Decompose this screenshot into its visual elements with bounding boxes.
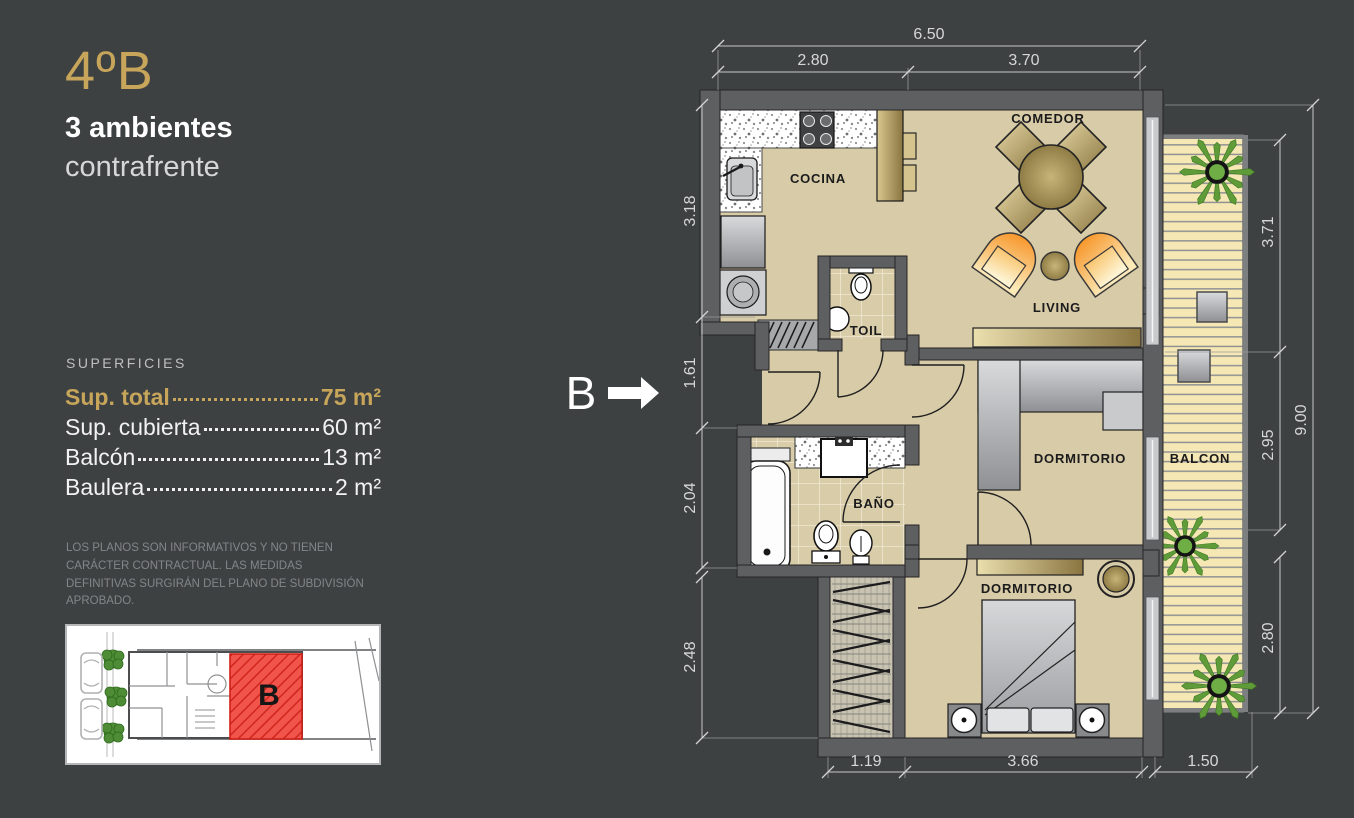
- label-dormitorio2: DORMITORIO: [981, 581, 1073, 596]
- legal-disclaimer: LOS PLANOS SON INFORMATIVOS Y NO TIENEN …: [66, 540, 368, 611]
- sofa: [973, 328, 1141, 347]
- area-row-balcon: Balcón 13 m²: [65, 444, 381, 474]
- label-toil: TOIL: [850, 323, 883, 338]
- areas-table: Sup. total 75 m² Sup. cubierta 60 m² Bal…: [65, 384, 381, 504]
- dim-left-3: 2.04: [682, 482, 699, 513]
- area-label: Sup. cubierta: [65, 414, 201, 441]
- dim-top-right: 3.70: [1008, 52, 1039, 69]
- subtitle-rooms: 3 ambientes: [65, 112, 233, 145]
- dim-right-total: 9.00: [1293, 404, 1310, 435]
- brochure-page: 4ºB 3 ambientes contrafrente SUPERFICIES…: [0, 0, 1354, 818]
- label-bano: BAÑO: [853, 496, 894, 511]
- dotted-leader: [173, 398, 318, 401]
- area-label: Sup. total: [65, 384, 170, 411]
- area-label: Balcón: [65, 444, 135, 471]
- area-label: Baulera: [65, 474, 144, 501]
- dotted-leader: [204, 428, 320, 431]
- unit-number: 4ºB: [65, 40, 154, 102]
- arrow-right-icon: [608, 377, 659, 409]
- bed: [982, 600, 1075, 733]
- dim-top-total: 6.50: [913, 26, 944, 43]
- area-row-total: Sup. total 75 m²: [65, 384, 381, 414]
- key-plan-cars: [81, 653, 102, 739]
- stove: [800, 112, 834, 148]
- dim-bottom-3: 1.50: [1187, 753, 1218, 770]
- dining-table: [1019, 145, 1083, 209]
- label-balcon: BALCON: [1170, 451, 1230, 466]
- vanity-sink: [821, 436, 867, 477]
- side-table: [1041, 252, 1069, 280]
- kitchen-sink: [723, 158, 757, 200]
- label-comedor: COMEDOR: [1011, 111, 1085, 126]
- area-row-cubierta: Sup. cubierta 60 m²: [65, 414, 381, 444]
- key-plan-unit-letter: B: [258, 679, 280, 712]
- key-plan-svg: B: [67, 626, 379, 763]
- key-plan-trees: [102, 650, 127, 743]
- area-row-baulera: Baulera 2 m²: [65, 474, 381, 504]
- area-value: 60 m²: [322, 414, 381, 441]
- dim-right-3: 2.80: [1260, 622, 1277, 653]
- label-living: LIVING: [1033, 300, 1081, 315]
- dim-right-1: 3.71: [1260, 216, 1277, 247]
- dim-left-1: 3.18: [682, 195, 699, 226]
- dim-left-4: 2.48: [682, 641, 699, 672]
- key-plan: B: [65, 624, 381, 765]
- section-marker: B: [566, 367, 659, 419]
- toilet: [812, 521, 840, 563]
- label-cocina: COCINA: [790, 171, 846, 186]
- dim-left-2: 1.61: [682, 357, 699, 388]
- kitchen-counter: [720, 110, 877, 148]
- area-value: 75 m²: [321, 384, 381, 411]
- dim-top-left: 2.80: [797, 52, 828, 69]
- balcony: [1151, 135, 1256, 720]
- dotted-leader: [147, 488, 332, 491]
- dim-bottom-2: 3.66: [1007, 753, 1038, 770]
- section-marker-letter: B: [566, 367, 597, 419]
- dotted-leader: [138, 458, 319, 461]
- dim-right-2: 2.95: [1260, 429, 1277, 460]
- key-plan-highlighted-unit: B: [230, 654, 302, 739]
- area-value: 13 m²: [322, 444, 381, 471]
- bidet: [850, 530, 872, 564]
- dim-bottom-1: 1.19: [850, 753, 881, 770]
- staircase: [830, 577, 893, 738]
- fridge: [721, 216, 765, 268]
- area-value: 2 m²: [335, 474, 381, 501]
- floor-plan-svg: COCINA COMEDOR LIVING TOIL BAÑO DORMITOR…: [560, 0, 1354, 818]
- washer: [720, 270, 766, 315]
- info-panel: 4ºB 3 ambientes contrafrente SUPERFICIES…: [65, 0, 381, 818]
- label-dormitorio1: DORMITORIO: [1034, 451, 1126, 466]
- dresser: [977, 558, 1083, 575]
- superficies-title: SUPERFICIES: [66, 355, 187, 371]
- subtitle-orientation: contrafrente: [65, 151, 220, 184]
